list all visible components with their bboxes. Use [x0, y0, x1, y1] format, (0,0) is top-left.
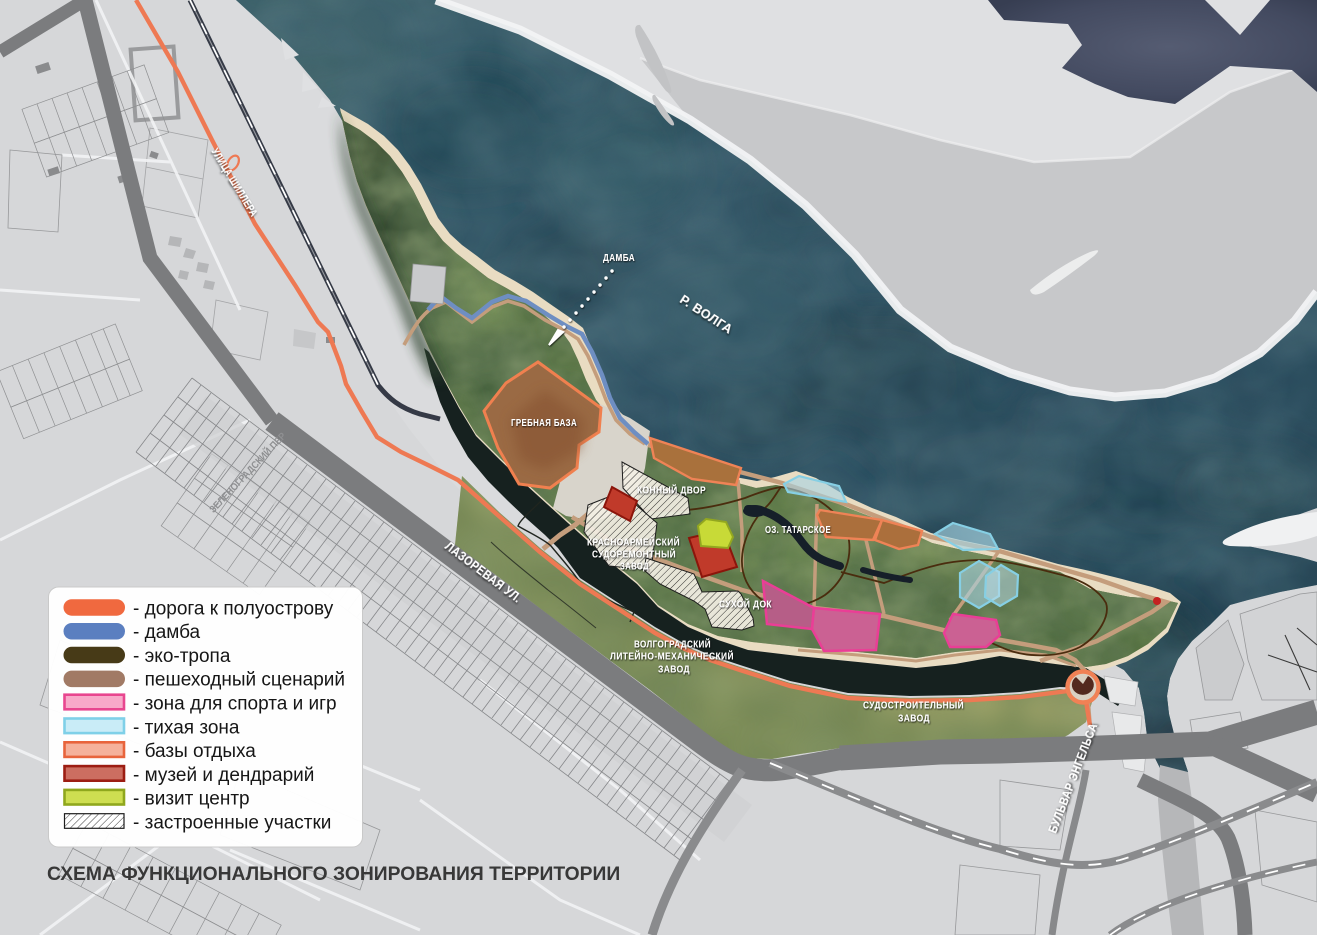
svg-text:ЗАВОД: ЗАВОД	[658, 665, 690, 676]
svg-text:ОЗ. ТАТАРСКОЕ: ОЗ. ТАТАРСКОЕ	[765, 525, 831, 536]
svg-text:- дамба: - дамба	[133, 622, 201, 643]
svg-text:СУДОСТРОИТЕЛЬНЫЙ: СУДОСТРОИТЕЛЬНЫЙ	[863, 699, 964, 712]
svg-text:- пешеходный сценарий: - пешеходный сценарий	[133, 670, 345, 691]
svg-text:ДАМБА: ДАМБА	[603, 253, 635, 264]
svg-text:СУДОРЕМОНТНЫЙ: СУДОРЕМОНТНЫЙ	[592, 548, 676, 561]
svg-text:СХЕМА ФУНКЦИОНАЛЬНОГО ЗОНИРОВА: СХЕМА ФУНКЦИОНАЛЬНОГО ЗОНИРОВАНИЯ ТЕРРИТ…	[47, 864, 620, 885]
svg-text:- музей и дендрарий: - музей и дендрарий	[133, 765, 314, 786]
svg-text:- застроенные участки: - застроенные участки	[133, 813, 331, 834]
svg-text:- тихая зона: - тихая зона	[133, 717, 240, 738]
svg-text:ЗАВОД: ЗАВОД	[620, 562, 649, 573]
svg-text:- дорога к полуострову: - дорога к полуострову	[133, 598, 334, 619]
svg-text:ВОЛГОГРАДСКИЙ: ВОЛГОГРАДСКИЙ	[634, 638, 711, 651]
svg-text:ГРЕБНАЯ БАЗА: ГРЕБНАЯ БАЗА	[511, 418, 577, 429]
svg-text:- зона для спорта и игр: - зона для спорта и игр	[133, 694, 337, 715]
svg-text:КРАСНОАРМЕЙСКИЙ: КРАСНОАРМЕЙСКИЙ	[587, 536, 680, 549]
svg-text:- визит центр: - визит центр	[133, 789, 250, 810]
svg-text:ЛИТЕЙНО-МЕХАНИЧЕСКИЙ: ЛИТЕЙНО-МЕХАНИЧЕСКИЙ	[610, 650, 734, 663]
svg-text:КОННЫЙ ДВОР: КОННЫЙ ДВОР	[637, 484, 706, 497]
svg-text:СУХОЙ ДОК: СУХОЙ ДОК	[719, 598, 772, 611]
svg-text:ЗАВОД: ЗАВОД	[898, 714, 930, 725]
svg-text:- базы отдыха: - базы отдыха	[133, 741, 256, 762]
svg-text:- эко-тропа: - эко-тропа	[133, 646, 231, 667]
